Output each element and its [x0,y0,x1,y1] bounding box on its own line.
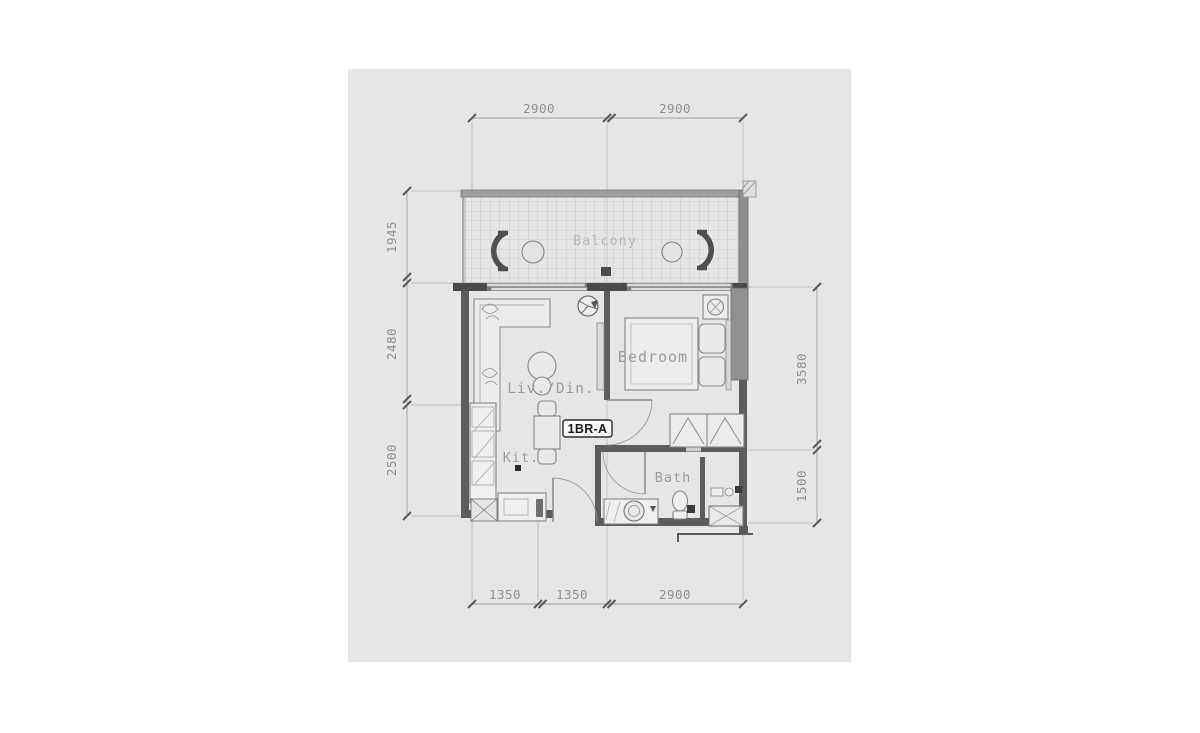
dim-bottom-2: 1350 [556,587,588,602]
shower-sink [711,488,723,496]
washing-machine [624,501,644,521]
dim-left-2: 2480 [384,328,399,360]
coffee-table [528,352,556,380]
unit-label-text: 1BR-A [568,422,608,436]
kitchen-lower-counter [498,493,546,521]
kitchen-counter [470,403,496,503]
balcony-top-wall [461,190,747,197]
balcony-corner-hatch [743,181,756,197]
room-label-balcony: Balcony [573,233,637,249]
right-shear-wall [731,288,748,380]
balcony-table-right [662,242,682,262]
headboard [726,320,731,390]
grid-marker-block [601,267,611,276]
room-label-bath: Bath [655,470,692,486]
shaft-box [471,499,497,521]
room-label-living-dining: Liv./Din. [507,381,595,397]
dim-right-1: 3580 [794,353,809,385]
unit-label-badge: 1BR-A [563,420,612,437]
dim-top-2: 2900 [659,101,691,116]
bedroom-door [607,400,652,445]
balcony-table-left [522,241,544,263]
balcony-right-wall [739,190,748,288]
entrance-door [553,478,597,522]
room-label-bedroom: Bedroom [618,348,688,366]
floorplan-panel: 2900 2900 1350 1350 2900 1945 2480 2500 … [348,69,851,662]
dim-top-1: 2900 [523,101,555,116]
living-bedroom-wall [604,291,610,400]
bath-door [603,452,645,494]
dim-left-3: 2500 [384,444,399,476]
toilet [673,491,688,519]
pillow-top [699,324,725,353]
tv-console [597,323,604,390]
dim-left-1: 1945 [384,221,399,253]
nightstand [703,295,728,319]
dim-right-2: 1500 [794,470,809,502]
left-exterior-wall [461,291,469,517]
bath-dark-fixture [687,505,695,513]
dim-bottom-1: 1350 [489,587,521,602]
floor-plan-svg: 2900 2900 1350 1350 2900 1945 2480 2500 … [348,69,851,662]
pillow-bottom [699,357,725,386]
dim-bottom-3: 2900 [659,587,691,602]
room-label-kitchen: Kit. [503,450,540,466]
shower-area [709,486,743,526]
wardrobe [670,414,744,447]
bath-vanity [604,499,658,524]
page-background: 2900 2900 1350 1350 2900 1945 2480 2500 … [0,0,1200,733]
fan-icon [578,296,598,316]
bath-divider-wall [700,457,705,526]
bath-left-wall [595,452,601,526]
